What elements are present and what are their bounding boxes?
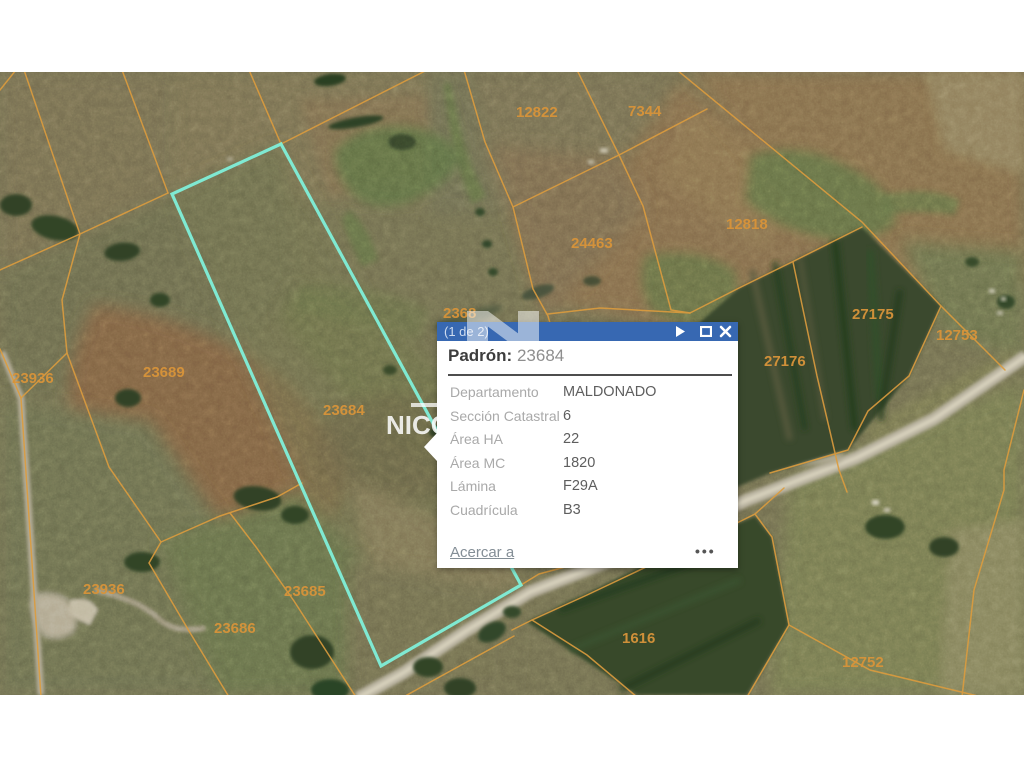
svg-text:1616: 1616 [622,630,655,647]
svg-text:12822: 12822 [516,104,558,121]
svg-text:12818: 12818 [726,216,768,233]
svg-text:24463: 24463 [571,235,613,252]
svg-text:23686: 23686 [214,620,256,637]
svg-text:12752: 12752 [842,654,884,671]
svg-text:12753: 12753 [936,327,978,344]
svg-text:7344: 7344 [628,103,662,120]
svg-text:27176: 27176 [764,353,806,370]
svg-text:2368: 2368 [443,305,476,322]
svg-text:23936: 23936 [12,370,54,387]
svg-text:23685: 23685 [284,583,326,600]
svg-text:23936: 23936 [83,581,125,598]
svg-text:27175: 27175 [852,306,894,323]
svg-text:23689: 23689 [143,364,185,381]
svg-text:23684: 23684 [323,402,365,419]
